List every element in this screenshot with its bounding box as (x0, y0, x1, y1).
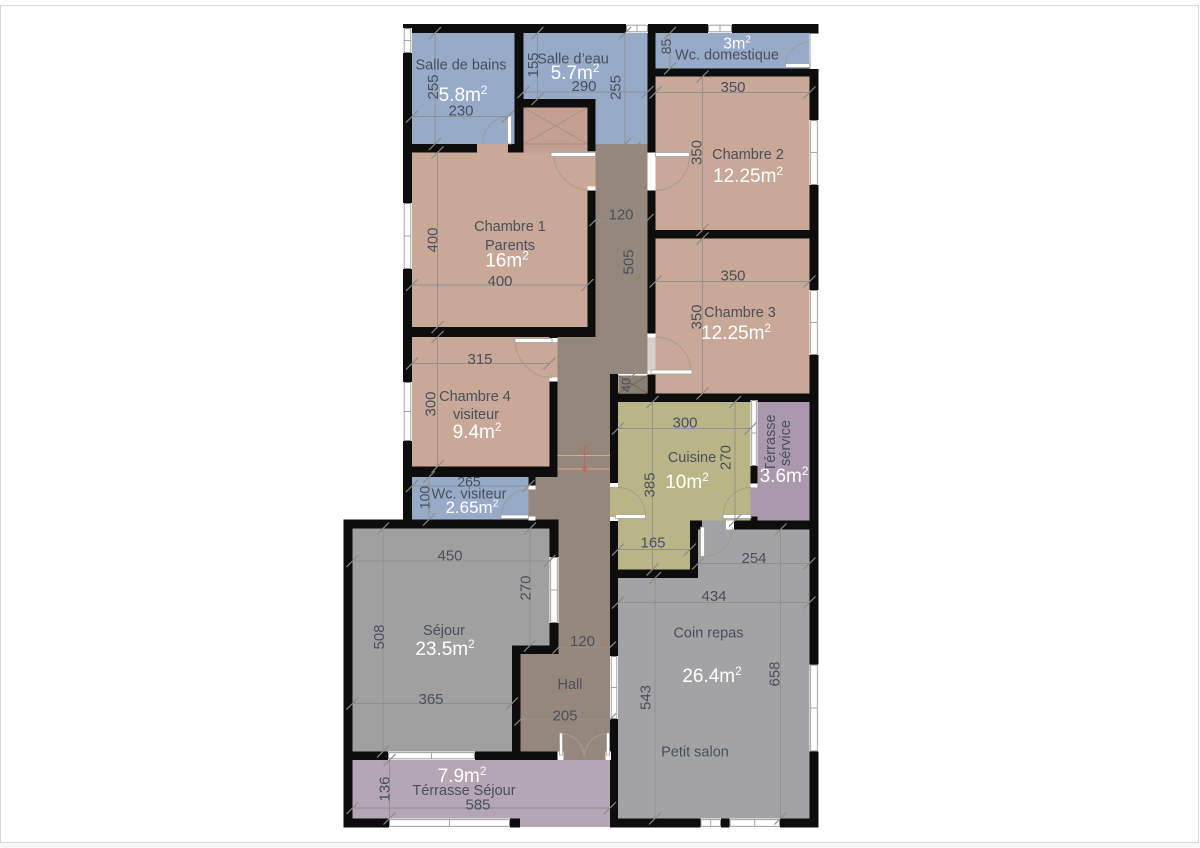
svg-text:Chambre 1: Chambre 1 (474, 219, 546, 235)
svg-text:585: 585 (465, 797, 490, 814)
svg-text:Salle de bains: Salle de bains (415, 58, 506, 74)
svg-text:Chambre 4: Chambre 4 (439, 389, 511, 405)
svg-text:255: 255 (425, 74, 442, 99)
svg-text:270: 270 (718, 445, 735, 470)
svg-text:254: 254 (741, 550, 766, 567)
svg-text:120: 120 (608, 207, 633, 224)
svg-text:Petit salon: Petit salon (661, 745, 729, 761)
svg-text:Séjour: Séjour (423, 623, 465, 639)
svg-text:12.25m2: 12.25m2 (701, 321, 771, 344)
svg-text:300: 300 (672, 415, 697, 432)
svg-text:434: 434 (701, 588, 726, 605)
svg-text:12.25m2: 12.25m2 (713, 164, 783, 187)
svg-text:100: 100 (417, 486, 433, 510)
svg-text:136: 136 (377, 776, 394, 801)
svg-text:350: 350 (720, 79, 745, 96)
svg-text:9.4m2: 9.4m2 (453, 420, 502, 443)
svg-text:290: 290 (571, 78, 596, 95)
svg-text:400: 400 (425, 227, 442, 252)
svg-text:155: 155 (525, 52, 542, 77)
svg-text:visiteur: visiteur (453, 407, 499, 423)
svg-text:508: 508 (371, 624, 388, 649)
svg-text:Wc. domestique: Wc. domestique (675, 48, 779, 64)
svg-text:Térrasse Séjour: Térrasse Séjour (412, 783, 515, 799)
svg-text:Chambre 2: Chambre 2 (712, 147, 784, 163)
svg-text:165: 165 (640, 535, 665, 552)
svg-text:Chambre 3: Chambre 3 (704, 305, 776, 321)
svg-text:26.4m2: 26.4m2 (682, 664, 741, 687)
svg-text:255: 255 (608, 75, 625, 100)
svg-text:315: 315 (467, 351, 492, 368)
svg-text:230: 230 (448, 103, 473, 120)
svg-text:85: 85 (658, 39, 674, 55)
svg-text:658: 658 (767, 661, 784, 686)
svg-text:385: 385 (642, 472, 659, 497)
svg-text:205: 205 (552, 708, 577, 725)
svg-text:2.65m2: 2.65m2 (445, 498, 498, 518)
svg-text:400: 400 (487, 273, 512, 290)
svg-text:365: 365 (418, 691, 443, 708)
svg-text:270: 270 (518, 575, 535, 600)
svg-text:Cuisine: Cuisine (668, 450, 716, 466)
svg-text:505: 505 (621, 249, 638, 274)
svg-text:120: 120 (570, 633, 595, 650)
svg-text:350: 350 (689, 304, 706, 329)
svg-text:450: 450 (437, 548, 462, 565)
svg-text:350: 350 (689, 140, 706, 165)
svg-text:300: 300 (423, 391, 440, 416)
svg-text:Coin repas: Coin repas (673, 626, 743, 642)
svg-text:350: 350 (720, 268, 745, 285)
svg-text:543: 543 (638, 685, 655, 710)
svg-text:Hall: Hall (558, 677, 583, 693)
svg-text:Térrasse: Térrasse (763, 414, 779, 471)
svg-text:23.5m2: 23.5m2 (415, 637, 474, 660)
svg-text:sérvice: sérvice (778, 420, 794, 466)
svg-text:40: 40 (619, 378, 634, 392)
svg-text:3.6m2: 3.6m2 (760, 464, 809, 487)
